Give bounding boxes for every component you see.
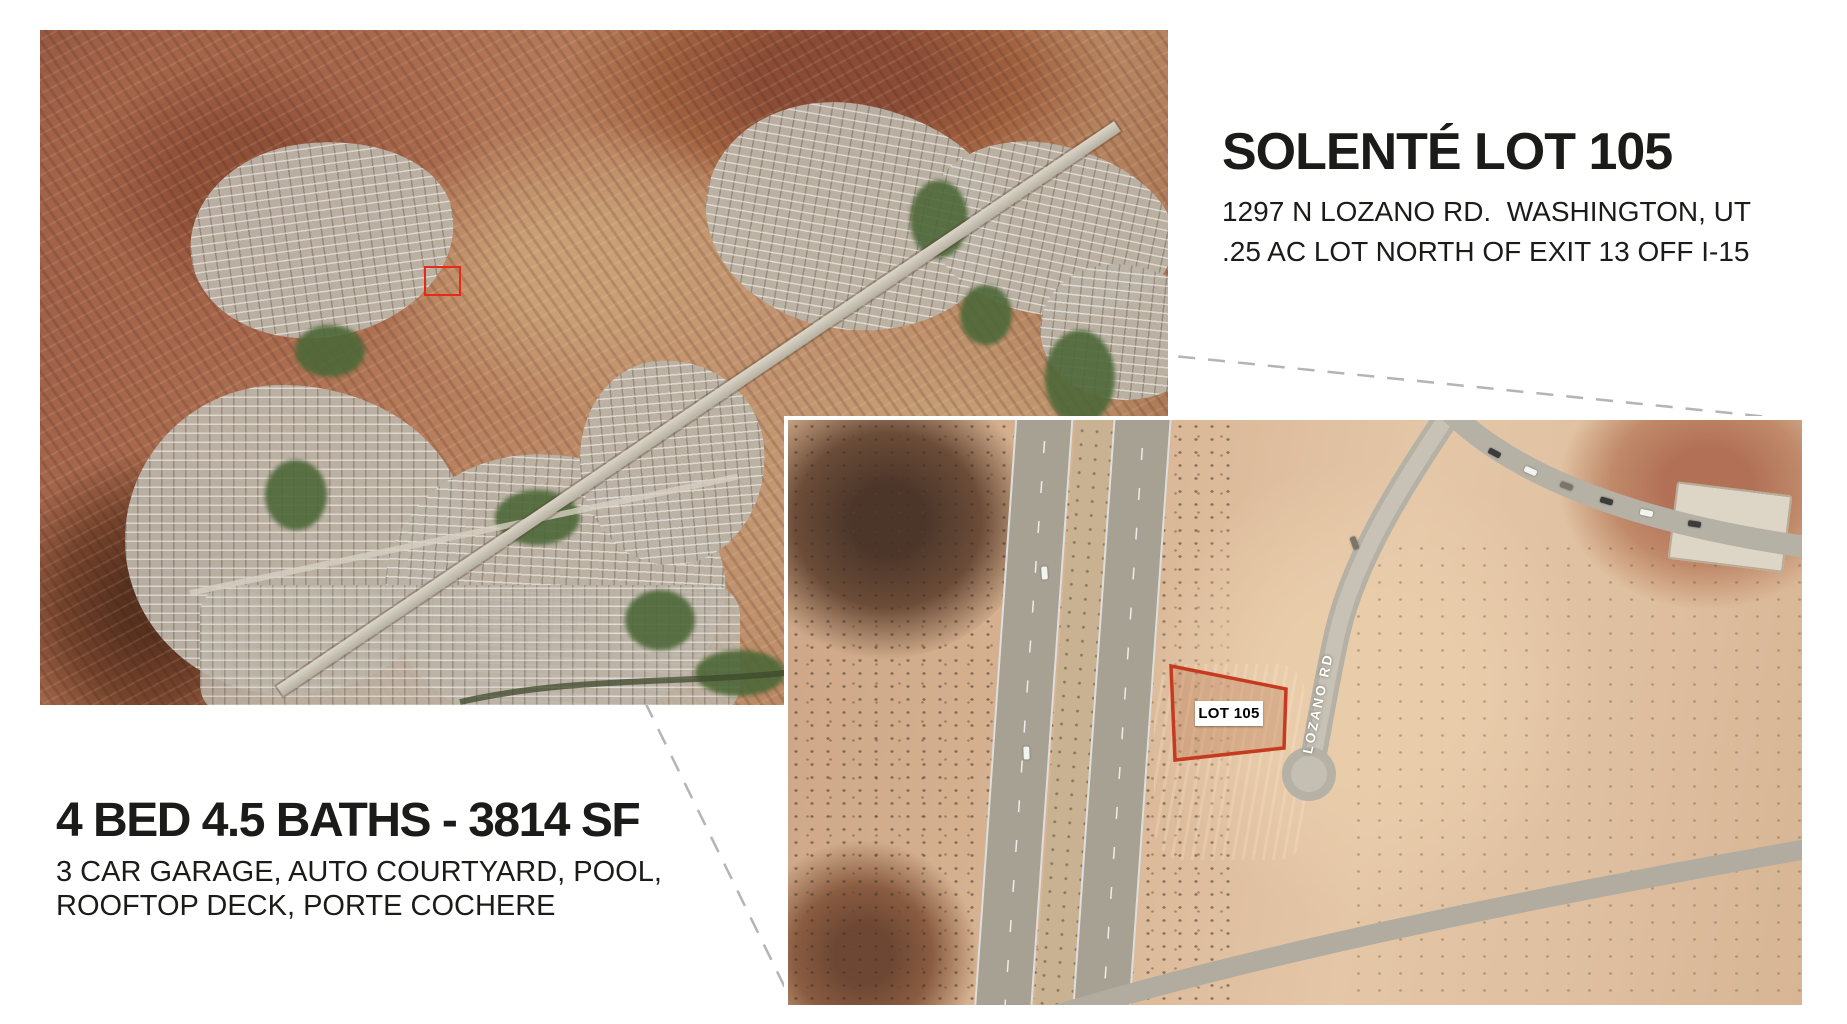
property-headline: 4 BED 4.5 BATHS - 3814 SF (56, 797, 662, 845)
street-branch-east (1448, 420, 1806, 548)
listing-address: 1297 N LOZANO RD. WASHINGTON, UT (1222, 192, 1751, 232)
car (1041, 566, 1048, 579)
cul-de-sac-surface (1291, 756, 1327, 792)
lot-location-marker (424, 266, 461, 296)
property-features-line-2: ROOFTOP DECK, PORTE COCHERE (56, 889, 662, 923)
lot-105-label: LOT 105 (1195, 701, 1263, 726)
property-details: 4 BED 4.5 BATHS - 3814 SF 3 CAR GARAGE, … (56, 797, 662, 923)
car (1023, 746, 1029, 759)
lot-detail-satellite-map: LOZANO RD LOT 105 (784, 416, 1806, 1009)
lozano-road (1311, 420, 1453, 768)
listing-header: SOLENTÉ LOT 105 1297 N LOZANO RD. WASHIN… (1222, 126, 1751, 272)
frontage-road-south (1026, 848, 1806, 1009)
listing-title: SOLENTÉ LOT 105 (1222, 126, 1751, 178)
property-features-line-1: 3 CAR GARAGE, AUTO COURTYARD, POOL, (56, 855, 662, 889)
listing-lot-info: .25 AC LOT NORTH OF EXIT 13 OFF I-15 (1222, 232, 1751, 272)
street-layer (788, 420, 1806, 1009)
